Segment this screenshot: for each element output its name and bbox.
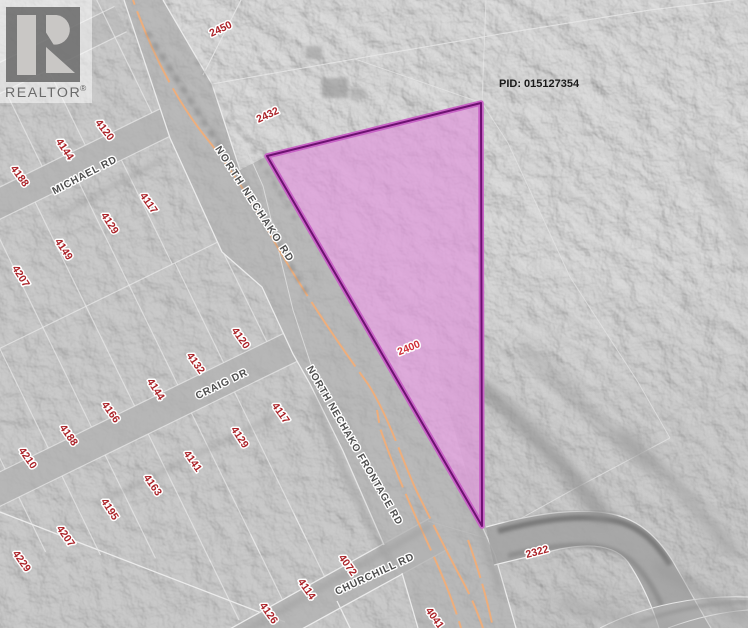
svg-text:REALTOR: REALTOR: [5, 85, 81, 101]
svg-text:®: ®: [80, 83, 87, 93]
svg-text:PID: 015127354: PID: 015127354: [499, 78, 580, 90]
